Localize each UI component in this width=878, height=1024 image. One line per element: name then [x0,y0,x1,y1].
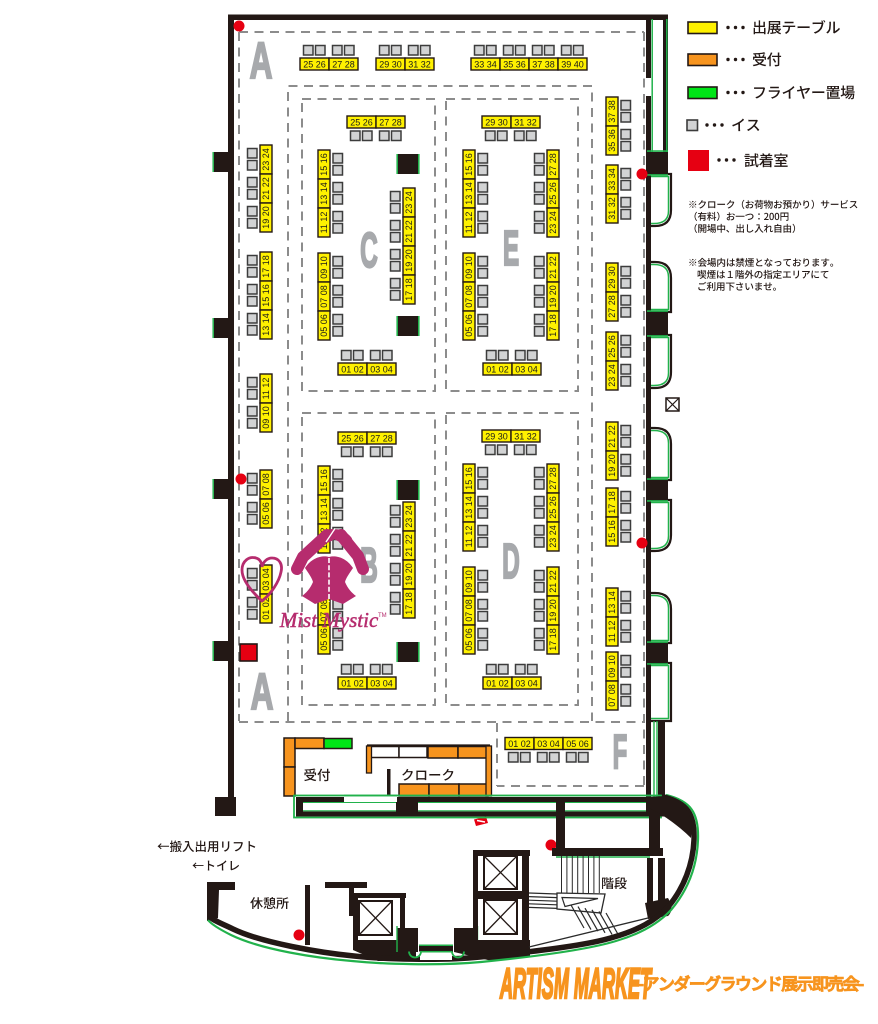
svg-text:25 26: 25 26 [548,182,558,205]
svg-text:E: E [503,222,519,276]
svg-text:17 18: 17 18 [548,628,558,651]
svg-text:23 24: 23 24 [261,148,271,171]
svg-text:11 12: 11 12 [464,526,474,548]
svg-text:D: D [502,535,520,589]
svg-text:15 16: 15 16 [607,520,617,543]
svg-text:35 36: 35 36 [503,59,526,69]
svg-text:07 08: 07 08 [607,684,617,707]
svg-text:TM: TM [378,613,387,619]
svg-text:29 30: 29 30 [485,117,508,127]
svg-text:05 06: 05 06 [566,739,589,749]
svg-text:21 22: 21 22 [404,534,414,557]
svg-text:09 10: 09 10 [464,256,474,279]
svg-text:09 10: 09 10 [319,256,329,279]
svg-text:17 18: 17 18 [607,491,617,514]
svg-text:01 02: 01 02 [486,364,509,374]
svg-text:19 20: 19 20 [548,285,558,308]
svg-text:13 14: 13 14 [464,496,474,519]
svg-text:07 08: 07 08 [319,285,329,308]
svg-text:25 26: 25 26 [341,433,364,443]
svg-text:25 26: 25 26 [350,117,373,127]
svg-text:15 16: 15 16 [319,153,329,176]
svg-text:17 18: 17 18 [404,278,414,301]
svg-text:31 32: 31 32 [514,431,537,441]
svg-text:15 16: 15 16 [464,467,474,490]
svg-text:29 30: 29 30 [379,59,402,69]
svg-text:01 02: 01 02 [486,678,509,688]
svg-text:25 26: 25 26 [607,335,617,358]
svg-text:19 20: 19 20 [261,206,271,229]
svg-text:05 06: 05 06 [464,628,474,651]
svg-text:01 02: 01 02 [341,364,364,374]
svg-text:F: F [613,726,628,779]
svg-text:03 04: 03 04 [370,678,393,688]
svg-text:27 28: 27 28 [548,153,558,176]
svg-text:A: A [250,32,273,88]
svg-text:37 38: 37 38 [532,59,555,69]
svg-text:19 20: 19 20 [404,563,414,586]
svg-text:21 22: 21 22 [607,425,617,448]
svg-text:13 14: 13 14 [319,182,329,205]
svg-text:13 14: 13 14 [261,313,271,336]
svg-text:27 28: 27 28 [607,295,617,318]
svg-text:15 16: 15 16 [261,284,271,307]
svg-text:03 04: 03 04 [537,739,560,749]
svg-text:29 30: 29 30 [607,266,617,289]
svg-text:23 24: 23 24 [548,211,558,234]
svg-text:29 30: 29 30 [485,431,508,441]
svg-text:23 24: 23 24 [404,191,414,214]
svg-text:13 14: 13 14 [464,182,474,205]
svg-text:09 10: 09 10 [464,570,474,593]
svg-text:23 24: 23 24 [548,525,558,548]
svg-text:33 34: 33 34 [474,59,497,69]
svg-text:21 22: 21 22 [261,177,271,200]
svg-text:03 04: 03 04 [515,678,538,688]
svg-text:03 04: 03 04 [370,364,393,374]
svg-text:39 40: 39 40 [561,59,584,69]
svg-text:A: A [251,663,274,719]
svg-text:11 12: 11 12 [464,212,474,234]
svg-text:25 26: 25 26 [303,59,326,69]
svg-text:03 04: 03 04 [515,364,538,374]
svg-text:03 04: 03 04 [261,568,271,591]
svg-text:27 28: 27 28 [332,59,355,69]
svg-text:35 36: 35 36 [607,129,617,152]
svg-text:05 06: 05 06 [319,314,329,337]
svg-text:11 12: 11 12 [319,212,329,234]
svg-text:11 12: 11 12 [261,378,271,400]
svg-text:01 02: 01 02 [508,739,531,749]
svg-text:21 22: 21 22 [548,570,558,593]
svg-text:25 26: 25 26 [548,496,558,519]
svg-text:23 24: 23 24 [404,505,414,528]
svg-text:09 10: 09 10 [261,406,271,429]
svg-text:31 32: 31 32 [408,59,431,69]
svg-text:Mist Mystic: Mist Mystic [279,608,379,632]
svg-text:19 20: 19 20 [404,249,414,272]
svg-text:05 06: 05 06 [261,502,271,525]
svg-text:31 32: 31 32 [514,117,537,127]
svg-text:21 22: 21 22 [404,220,414,243]
svg-text:07 08: 07 08 [464,599,474,622]
svg-text:07 08: 07 08 [261,473,271,496]
svg-text:15 16: 15 16 [464,153,474,176]
svg-text:17 18: 17 18 [548,314,558,337]
svg-text:09 10: 09 10 [607,655,617,678]
svg-text:13 14: 13 14 [319,498,329,521]
svg-text:27 28: 27 28 [379,117,402,127]
svg-text:07 08: 07 08 [464,285,474,308]
svg-text:C: C [360,224,378,278]
svg-text:21 22: 21 22 [548,256,558,279]
svg-text:23 24: 23 24 [607,364,617,387]
svg-text:13 14: 13 14 [607,591,617,614]
svg-text:15 16: 15 16 [319,469,329,492]
svg-text:27 28: 27 28 [548,467,558,490]
svg-text:27 28: 27 28 [370,433,393,443]
svg-text:33 34: 33 34 [607,168,617,191]
svg-text:17 18: 17 18 [404,592,414,615]
svg-text:ARTISM MARKET: ARTISM MARKET [499,959,652,1007]
svg-text:01 02: 01 02 [341,678,364,688]
svg-text:31 32: 31 32 [607,197,617,220]
svg-text:05 06: 05 06 [464,314,474,337]
svg-text:19 20: 19 20 [548,599,558,622]
svg-text:11 12: 11 12 [607,621,617,643]
svg-text:37 38: 37 38 [607,100,617,123]
svg-text:19 20: 19 20 [607,454,617,477]
svg-text:17 18: 17 18 [261,255,271,278]
